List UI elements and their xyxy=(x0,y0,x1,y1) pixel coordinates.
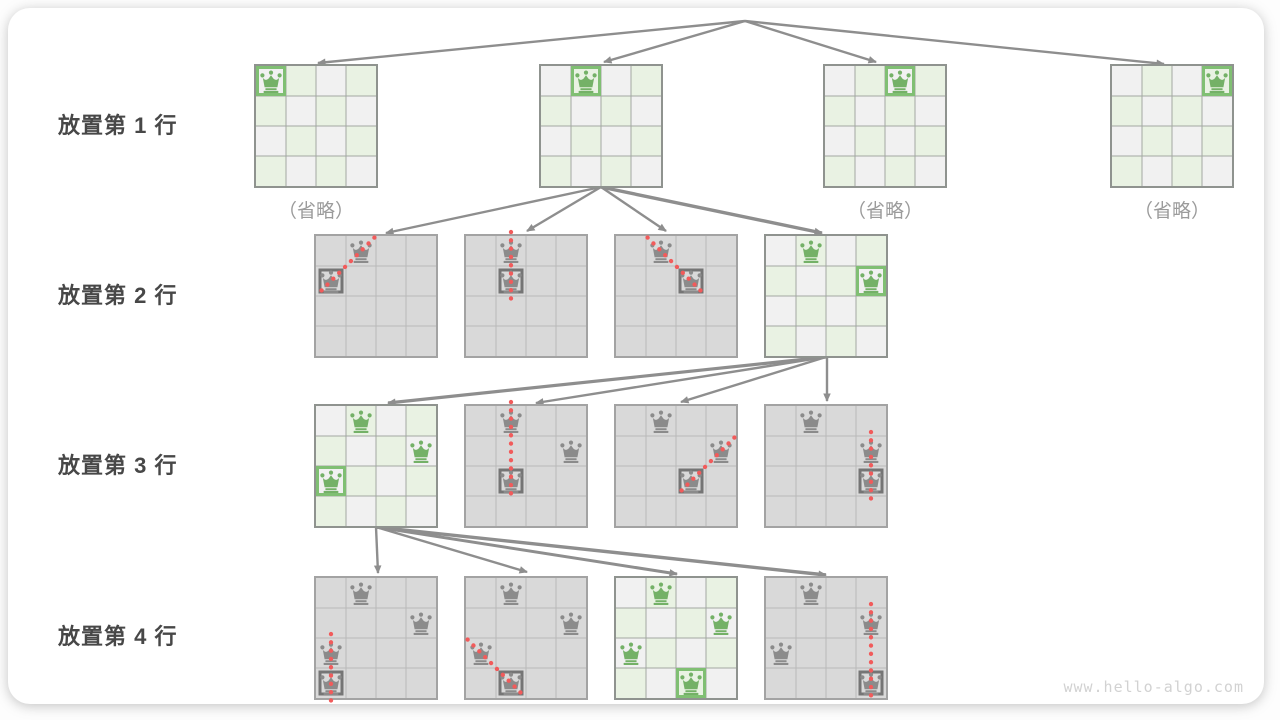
board-cell xyxy=(346,638,376,668)
board-cell xyxy=(526,466,556,496)
board-cell xyxy=(631,66,661,96)
board-cell xyxy=(856,296,886,326)
tree-arrow xyxy=(745,21,1164,64)
board-cell xyxy=(346,436,376,466)
board-cell xyxy=(706,326,736,356)
board-cell xyxy=(616,608,646,638)
diagram-layers: （省略）（省略）（省略） 放置第 1 行放置第 2 行放置第 3 行放置第 4 … xyxy=(0,0,1280,720)
board-cell xyxy=(376,578,406,608)
board-cell xyxy=(646,266,676,296)
row-label-4: 放置第 4 行 xyxy=(58,622,177,652)
board-cell xyxy=(631,126,661,156)
board-row1-col3 xyxy=(1110,64,1234,188)
board-cell xyxy=(466,496,496,526)
board-cell xyxy=(616,466,646,496)
tree-arrow xyxy=(318,21,745,63)
board-cell xyxy=(466,326,496,356)
board-cell xyxy=(466,578,496,608)
board-cell xyxy=(856,326,886,356)
board-row1-col1 xyxy=(539,64,663,188)
omitted-caption: （省略） xyxy=(805,196,965,223)
board-cell xyxy=(526,638,556,668)
board-cell xyxy=(1142,66,1172,96)
board-cell xyxy=(346,156,376,186)
omitted-caption: （省略） xyxy=(1092,196,1252,223)
board-cell xyxy=(825,96,855,126)
board-cell xyxy=(316,578,346,608)
board-cell xyxy=(766,496,796,526)
board-cell xyxy=(825,66,855,96)
board-cell xyxy=(646,668,676,698)
board-row2-try-col2 xyxy=(614,234,738,358)
board-cell xyxy=(286,66,316,96)
board-cell xyxy=(406,406,436,436)
board-cell xyxy=(316,236,346,266)
board-cell xyxy=(526,496,556,526)
board-cell xyxy=(915,96,945,126)
board-cell xyxy=(286,126,316,156)
board-cell xyxy=(526,578,556,608)
board-row3-try-col1 xyxy=(464,404,588,528)
board-cell xyxy=(646,326,676,356)
board-row2-try-col0 xyxy=(314,234,438,358)
board-cell xyxy=(601,156,631,186)
board-cell xyxy=(796,266,826,296)
board-cell xyxy=(466,466,496,496)
board-row4-try-col1 xyxy=(464,576,588,700)
board-cell xyxy=(1172,126,1202,156)
board-cell xyxy=(466,436,496,466)
board-cell xyxy=(826,436,856,466)
board-cell xyxy=(1172,96,1202,126)
board-cell xyxy=(466,236,496,266)
board-cell xyxy=(646,436,676,466)
board-cell xyxy=(466,668,496,698)
board-cell xyxy=(676,496,706,526)
board-cell xyxy=(1142,156,1172,186)
board-cell xyxy=(826,578,856,608)
board-cell xyxy=(346,96,376,126)
board-cell xyxy=(541,96,571,126)
board-cell xyxy=(676,608,706,638)
board-cell xyxy=(526,668,556,698)
board-cell xyxy=(256,126,286,156)
board-cell xyxy=(1142,126,1172,156)
board-cell xyxy=(541,156,571,186)
board-cell xyxy=(346,126,376,156)
board-cell xyxy=(915,156,945,186)
board-cell xyxy=(466,608,496,638)
board-cell xyxy=(316,96,346,126)
board-cell xyxy=(466,406,496,436)
board-cell xyxy=(526,296,556,326)
board-cell xyxy=(496,638,526,668)
board-cell xyxy=(766,266,796,296)
board-cell xyxy=(796,466,826,496)
row-label-3: 放置第 3 行 xyxy=(58,451,177,481)
board-cell xyxy=(766,608,796,638)
board-cell xyxy=(855,66,885,96)
board-cell xyxy=(1202,156,1232,186)
board-cell xyxy=(676,406,706,436)
board-cell xyxy=(526,436,556,466)
board-cell xyxy=(676,326,706,356)
board-cell xyxy=(466,296,496,326)
board-cell xyxy=(346,608,376,638)
board-cell xyxy=(601,66,631,96)
board-cell xyxy=(376,668,406,698)
board-cell xyxy=(706,296,736,326)
board-cell xyxy=(346,326,376,356)
board-cell xyxy=(796,436,826,466)
board-row1-col2 xyxy=(823,64,947,188)
watermark: www.hello-algo.com xyxy=(1063,678,1244,696)
board-cell xyxy=(616,266,646,296)
board-cell xyxy=(616,496,646,526)
board-cell xyxy=(826,668,856,698)
board-cell xyxy=(316,66,346,96)
board-row2-try-col1 xyxy=(464,234,588,358)
board-cell xyxy=(406,236,436,266)
board-cell xyxy=(571,156,601,186)
board-cell xyxy=(316,156,346,186)
board-cell xyxy=(496,608,526,638)
board-cell xyxy=(1142,96,1172,126)
board-cell xyxy=(541,126,571,156)
board-cell xyxy=(826,638,856,668)
board-cell xyxy=(676,638,706,668)
board-cell xyxy=(376,266,406,296)
board-cell xyxy=(526,236,556,266)
board-cell xyxy=(646,466,676,496)
row-label-1: 放置第 1 行 xyxy=(58,111,177,141)
board-row4-try-col2-solution xyxy=(614,576,738,700)
board-cell xyxy=(376,496,406,526)
board-cell xyxy=(646,496,676,526)
board-cell xyxy=(766,326,796,356)
board-cell xyxy=(556,236,586,266)
board-cell xyxy=(915,66,945,96)
board-cell xyxy=(766,406,796,436)
board-cell xyxy=(706,236,736,266)
board-cell xyxy=(406,496,436,526)
board-cell xyxy=(616,436,646,466)
board-cell xyxy=(706,578,736,608)
board-row4-try-col3 xyxy=(764,576,888,700)
board-cell xyxy=(346,668,376,698)
board-cell xyxy=(316,406,346,436)
board-cell xyxy=(346,496,376,526)
board-cell xyxy=(826,466,856,496)
board-cell xyxy=(1112,66,1142,96)
board-cell xyxy=(406,296,436,326)
board-cell xyxy=(766,236,796,266)
board-cell xyxy=(826,236,856,266)
board-cell xyxy=(826,406,856,436)
board-cell xyxy=(616,296,646,326)
board-cell xyxy=(616,578,646,608)
board-cell xyxy=(646,638,676,668)
board-cell xyxy=(526,406,556,436)
row-label-2: 放置第 2 行 xyxy=(58,281,177,311)
board-cell xyxy=(256,156,286,186)
board-cell xyxy=(676,296,706,326)
board-cell xyxy=(855,126,885,156)
board-cell xyxy=(885,96,915,126)
board-cell xyxy=(825,156,855,186)
board-cell xyxy=(376,436,406,466)
board-cell xyxy=(676,436,706,466)
board-cell xyxy=(556,668,586,698)
board-cell xyxy=(571,96,601,126)
board-cell xyxy=(286,96,316,126)
board-cell xyxy=(676,236,706,266)
board-cell xyxy=(316,436,346,466)
board-cell xyxy=(826,608,856,638)
board-cell xyxy=(1202,126,1232,156)
tree-arrow xyxy=(388,357,826,403)
board-cell xyxy=(376,466,406,496)
board-cell xyxy=(796,496,826,526)
board-cell xyxy=(406,578,436,608)
board-cell xyxy=(706,496,736,526)
tree-arrow xyxy=(376,527,677,574)
board-row1-col0 xyxy=(254,64,378,188)
board-cell xyxy=(406,466,436,496)
board-cell xyxy=(316,496,346,526)
board-cell xyxy=(376,406,406,436)
board-cell xyxy=(796,638,826,668)
board-cell xyxy=(915,126,945,156)
board-cell xyxy=(766,436,796,466)
board-row3-try-col2 xyxy=(614,404,738,528)
board-cell xyxy=(601,126,631,156)
board-cell xyxy=(346,296,376,326)
board-cell xyxy=(706,266,736,296)
board-cell xyxy=(406,638,436,668)
board-row4-try-col0 xyxy=(314,576,438,700)
board-cell xyxy=(826,496,856,526)
board-cell xyxy=(1112,126,1142,156)
tree-arrow xyxy=(536,357,826,403)
board-cell xyxy=(766,466,796,496)
board-cell xyxy=(676,578,706,608)
tree-arrow xyxy=(527,187,601,231)
board-cell xyxy=(1112,156,1142,186)
board-cell xyxy=(766,296,796,326)
omitted-caption: （省略） xyxy=(236,196,396,223)
board-cell xyxy=(1112,96,1142,126)
board-cell xyxy=(346,66,376,96)
board-cell xyxy=(766,668,796,698)
board-cell xyxy=(855,96,885,126)
n-queens-backtracking-diagram: （省略）（省略）（省略） 放置第 1 行放置第 2 行放置第 3 行放置第 4 … xyxy=(0,0,1280,720)
board-cell xyxy=(826,326,856,356)
board-cell xyxy=(556,578,586,608)
board-cell xyxy=(376,638,406,668)
board-cell xyxy=(796,296,826,326)
board-row2-try-col3 xyxy=(764,234,888,358)
board-cell xyxy=(496,496,526,526)
board-cell xyxy=(1172,66,1202,96)
board-cell xyxy=(1202,96,1232,126)
board-cell xyxy=(616,668,646,698)
board-cell xyxy=(856,236,886,266)
board-cell xyxy=(526,326,556,356)
board-cell xyxy=(885,126,915,156)
board-cell xyxy=(885,156,915,186)
board-row3-try-col0 xyxy=(314,404,438,528)
board-cell xyxy=(316,126,346,156)
board-cell xyxy=(616,236,646,266)
board-cell xyxy=(376,236,406,266)
board-cell xyxy=(646,608,676,638)
board-cell xyxy=(556,266,586,296)
board-cell xyxy=(556,406,586,436)
board-cell xyxy=(496,326,526,356)
board-cell xyxy=(706,466,736,496)
tree-arrow xyxy=(376,527,826,575)
board-cell xyxy=(706,668,736,698)
board-cell xyxy=(631,156,661,186)
board-cell xyxy=(316,326,346,356)
board-cell xyxy=(796,608,826,638)
board-cell xyxy=(1172,156,1202,186)
board-cell xyxy=(826,266,856,296)
board-cell xyxy=(556,496,586,526)
board-cell xyxy=(796,326,826,356)
board-cell xyxy=(616,326,646,356)
board-cell xyxy=(316,296,346,326)
board-cell xyxy=(631,96,661,126)
board-cell xyxy=(556,326,586,356)
board-cell xyxy=(541,66,571,96)
board-cell xyxy=(556,296,586,326)
board-cell xyxy=(616,406,646,436)
board-cell xyxy=(571,126,601,156)
board-row3-try-col3 xyxy=(764,404,888,528)
board-cell xyxy=(286,156,316,186)
board-cell xyxy=(376,326,406,356)
board-cell xyxy=(526,266,556,296)
board-cell xyxy=(855,156,885,186)
board-cell xyxy=(256,96,286,126)
board-cell xyxy=(526,608,556,638)
board-cell xyxy=(826,296,856,326)
board-cell xyxy=(706,406,736,436)
board-cell xyxy=(766,578,796,608)
board-cell xyxy=(466,266,496,296)
board-cell xyxy=(646,296,676,326)
board-cell xyxy=(556,466,586,496)
board-cell xyxy=(406,326,436,356)
tree-arrow xyxy=(376,527,378,573)
tree-arrow xyxy=(386,187,601,233)
board-cell xyxy=(376,608,406,638)
board-cell xyxy=(406,668,436,698)
board-cell xyxy=(406,266,436,296)
board-cell xyxy=(556,638,586,668)
board-cell xyxy=(825,126,855,156)
board-cell xyxy=(706,638,736,668)
board-cell xyxy=(346,466,376,496)
board-cell xyxy=(376,296,406,326)
board-cell xyxy=(796,668,826,698)
board-cell xyxy=(346,266,376,296)
board-cell xyxy=(601,96,631,126)
